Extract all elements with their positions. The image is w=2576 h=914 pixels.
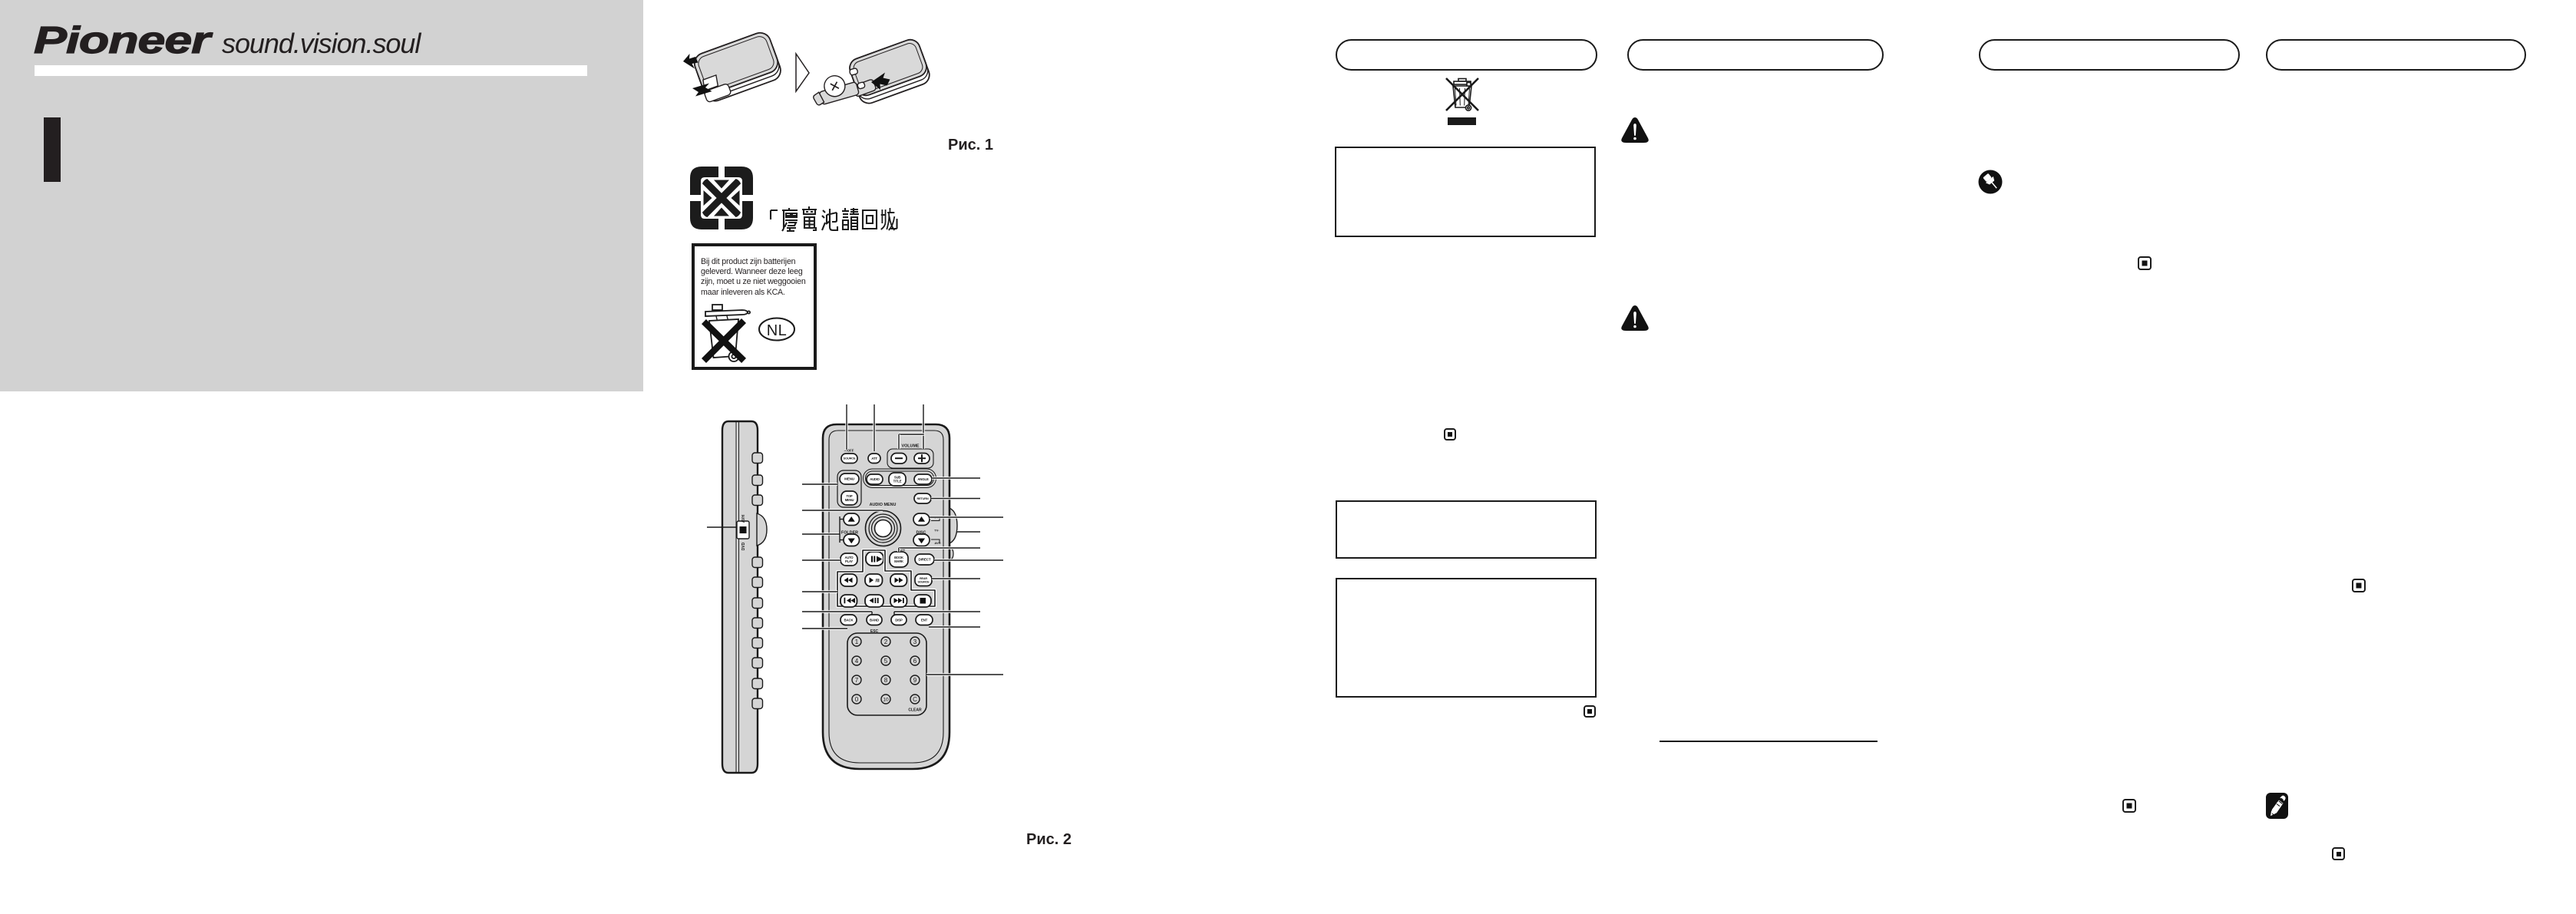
svg-text:DISP: DISP bbox=[895, 618, 903, 622]
svg-text:3: 3 bbox=[913, 638, 917, 645]
svg-text:5: 5 bbox=[884, 658, 888, 665]
svg-text:DIRECT: DIRECT bbox=[919, 558, 931, 562]
svg-text:BAND: BAND bbox=[870, 618, 879, 622]
svg-text:DVD: DVD bbox=[741, 542, 746, 550]
svg-text:4: 4 bbox=[855, 658, 859, 665]
svg-text:CLEAR: CLEAR bbox=[908, 708, 922, 713]
svg-text:2: 2 bbox=[884, 638, 888, 645]
svg-text:RETURN: RETURN bbox=[916, 497, 928, 500]
svg-text:VOLUME: VOLUME bbox=[901, 444, 919, 449]
svg-text:NL: NL bbox=[767, 322, 788, 339]
svg-text:/II: /II bbox=[876, 579, 880, 584]
svg-text:SOURCE: SOURCE bbox=[917, 580, 930, 583]
svg-text:MENU: MENU bbox=[845, 498, 854, 502]
svg-text:PLAY: PLAY bbox=[845, 559, 853, 563]
svg-text:1: 1 bbox=[855, 638, 859, 645]
svg-text:ATT: ATT bbox=[871, 457, 877, 460]
svg-text:AUDIO: AUDIO bbox=[870, 477, 880, 481]
svg-text:10: 10 bbox=[883, 697, 889, 702]
svg-text:TITLE: TITLE bbox=[893, 479, 902, 483]
svg-text:SOURCE: SOURCE bbox=[844, 457, 856, 460]
svg-text:REAR: REAR bbox=[920, 577, 927, 580]
svg-text:BACK: BACK bbox=[844, 618, 854, 622]
svg-text:ANGLE: ANGLE bbox=[917, 477, 929, 481]
svg-text:TV·: TV· bbox=[934, 529, 939, 533]
svg-text:AVH: AVH bbox=[741, 515, 746, 523]
svg-text:AUDIO MENU: AUDIO MENU bbox=[870, 503, 897, 507]
svg-text:0: 0 bbox=[855, 696, 859, 703]
svg-text:9: 9 bbox=[913, 677, 917, 684]
svg-text:MARK: MARK bbox=[894, 559, 903, 563]
svg-text:6: 6 bbox=[913, 658, 917, 665]
svg-text:C: C bbox=[913, 696, 917, 703]
svg-text:MENU: MENU bbox=[844, 477, 855, 481]
svg-text:ENT: ENT bbox=[921, 618, 928, 622]
svg-text:8: 8 bbox=[884, 677, 888, 684]
svg-text:7: 7 bbox=[855, 677, 859, 684]
